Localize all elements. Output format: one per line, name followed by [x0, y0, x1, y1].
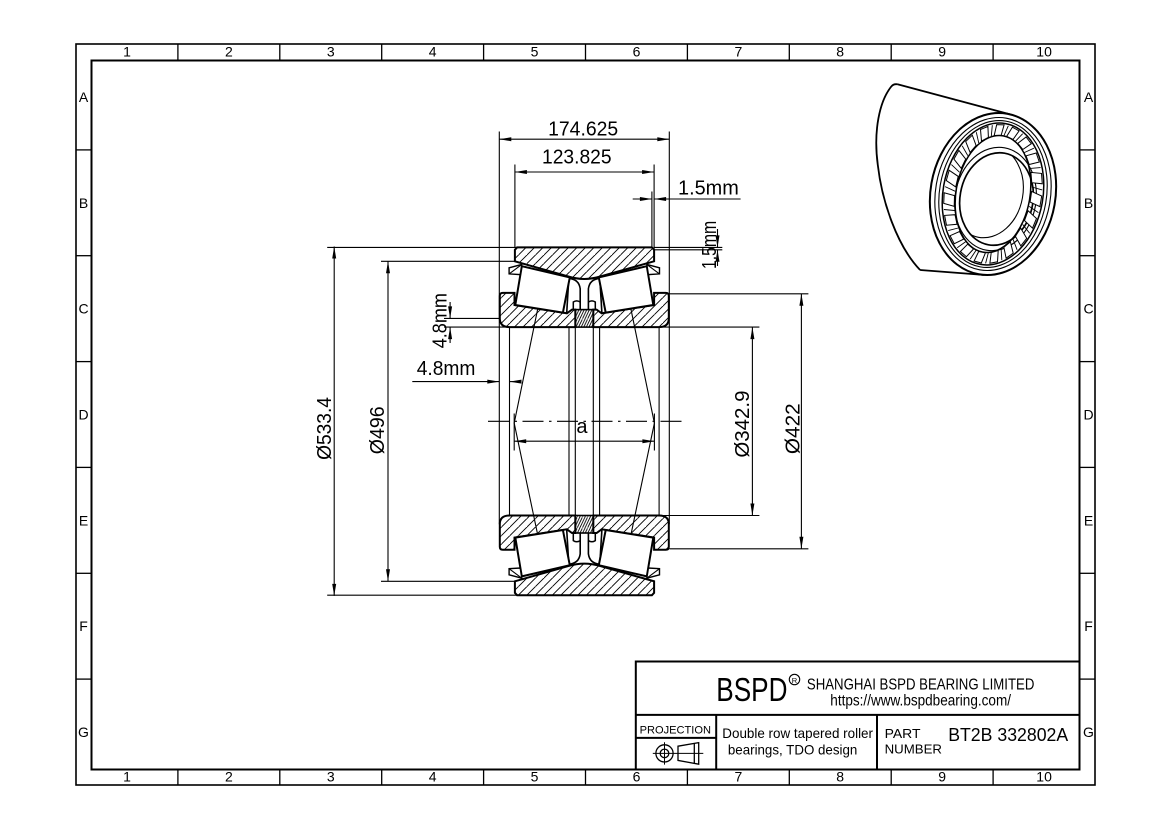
- svg-text:B: B: [79, 195, 88, 211]
- svg-text:5: 5: [531, 44, 539, 60]
- svg-text:6: 6: [633, 769, 641, 785]
- svg-text:2: 2: [225, 769, 233, 785]
- svg-text:BT2B 332802A: BT2B 332802A: [948, 725, 1068, 745]
- svg-text:PART: PART: [885, 726, 921, 741]
- svg-text:R: R: [792, 676, 798, 685]
- svg-text:Ø342.9: Ø342.9: [732, 391, 754, 458]
- svg-text:2: 2: [225, 44, 233, 60]
- svg-text:Double row tapered roller: Double row tapered roller: [722, 725, 873, 741]
- svg-text:B: B: [1084, 195, 1093, 211]
- svg-text:4.8mm: 4.8mm: [429, 293, 451, 348]
- svg-text:6: 6: [633, 44, 641, 60]
- svg-text:7: 7: [735, 769, 743, 785]
- svg-text:G: G: [1083, 724, 1094, 740]
- svg-text:A: A: [1084, 89, 1094, 105]
- svg-text:C: C: [1083, 301, 1093, 317]
- svg-text:C: C: [78, 301, 88, 317]
- svg-text:3: 3: [327, 769, 335, 785]
- svg-text:9: 9: [938, 44, 946, 60]
- svg-text:D: D: [1083, 407, 1093, 423]
- svg-text:SHANGHAI BSPD BEARING LIMITED: SHANGHAI BSPD BEARING LIMITED: [807, 676, 1035, 693]
- svg-text:174.625: 174.625: [548, 119, 618, 141]
- svg-text:Ø496: Ø496: [367, 406, 389, 454]
- svg-text:F: F: [1084, 618, 1093, 634]
- svg-text:a: a: [576, 416, 588, 438]
- svg-text:BSPD: BSPD: [716, 671, 787, 708]
- svg-text:1: 1: [123, 769, 131, 785]
- svg-text:4: 4: [429, 44, 437, 60]
- svg-text:4.8mm: 4.8mm: [417, 358, 476, 380]
- svg-text:123.825: 123.825: [542, 147, 612, 169]
- svg-text:1: 1: [123, 44, 131, 60]
- svg-text:F: F: [79, 618, 88, 634]
- svg-text:bearings, TDO design: bearings, TDO design: [728, 741, 857, 757]
- svg-text:E: E: [1084, 512, 1093, 528]
- svg-text:1.5mm: 1.5mm: [699, 221, 721, 269]
- svg-text:D: D: [78, 407, 88, 423]
- svg-text:9: 9: [938, 769, 946, 785]
- svg-text:Ø422: Ø422: [783, 403, 805, 454]
- svg-text:Ø533.4: Ø533.4: [314, 397, 336, 460]
- svg-text:3: 3: [327, 44, 335, 60]
- svg-text:8: 8: [836, 769, 844, 785]
- svg-text:E: E: [79, 512, 88, 528]
- svg-text:4: 4: [429, 769, 437, 785]
- svg-text:1.5mm: 1.5mm: [678, 178, 739, 200]
- svg-text:PROJECTION: PROJECTION: [640, 725, 711, 737]
- svg-text:10: 10: [1036, 44, 1052, 60]
- svg-text:5: 5: [531, 769, 539, 785]
- svg-text:A: A: [79, 89, 89, 105]
- svg-text:NUMBER: NUMBER: [885, 742, 942, 757]
- svg-text:10: 10: [1036, 769, 1052, 785]
- svg-text:7: 7: [735, 44, 743, 60]
- svg-text:G: G: [78, 724, 89, 740]
- svg-text:https://www.bspdbearing.com/: https://www.bspdbearing.com/: [830, 692, 1011, 709]
- svg-text:8: 8: [836, 44, 844, 60]
